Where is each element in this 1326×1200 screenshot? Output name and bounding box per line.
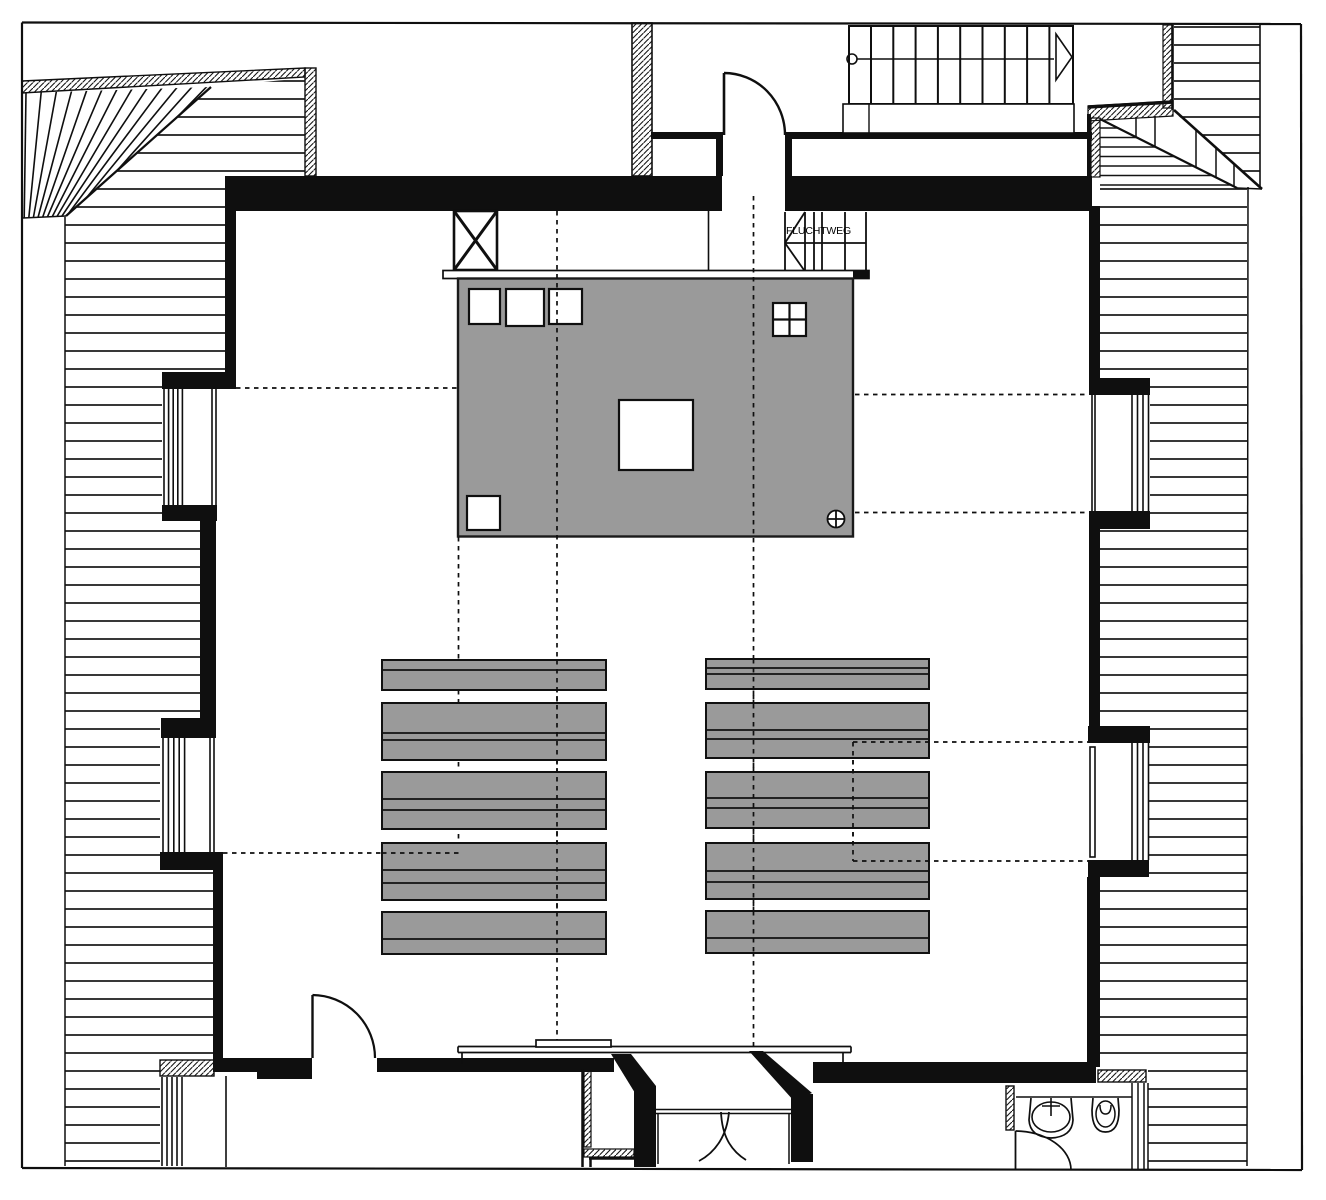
svg-text:FLUCHTWEG: FLUCHTWEG — [786, 226, 851, 237]
